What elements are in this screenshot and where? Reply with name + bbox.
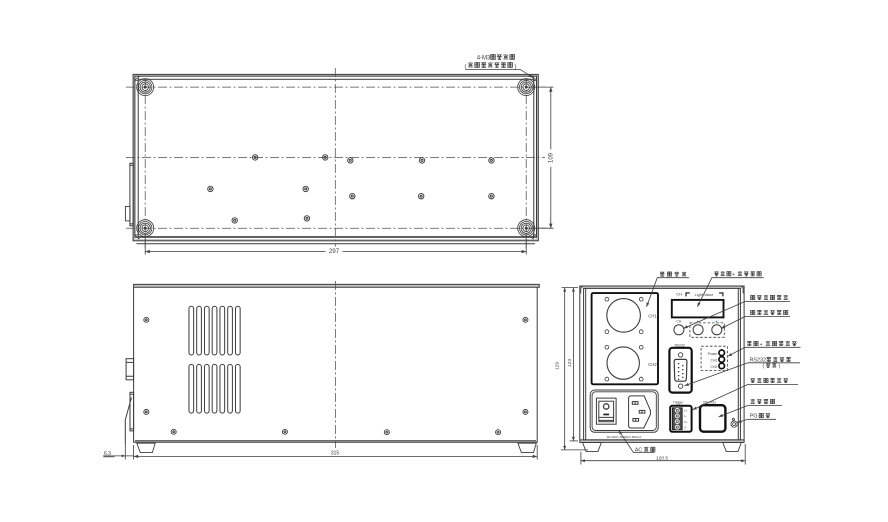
svg-text:123: 123 xyxy=(567,359,573,367)
svg-text:CH2: CH2 xyxy=(711,365,718,369)
svg-text:120.5: 120.5 xyxy=(656,456,668,462)
svg-text:Power: Power xyxy=(708,352,718,356)
svg-text:PG: PG xyxy=(750,414,758,420)
svg-text:4-M3: 4-M3 xyxy=(477,55,491,61)
svg-text:CH: CH xyxy=(676,292,682,297)
svg-text:CH: CH xyxy=(676,320,681,324)
svg-text:CH1: CH1 xyxy=(648,313,657,318)
svg-text:CH2: CH2 xyxy=(648,362,657,367)
svg-text:297: 297 xyxy=(329,248,340,255)
svg-text:109: 109 xyxy=(548,152,554,163)
svg-text:129: 129 xyxy=(555,362,561,370)
svg-text:315: 315 xyxy=(331,451,340,457)
svg-text:CH1: CH1 xyxy=(711,359,718,363)
svg-text:Trigger: Trigger xyxy=(673,400,684,404)
svg-text:2-: 2- xyxy=(684,426,687,430)
svg-text:1+: 1+ xyxy=(684,409,688,413)
svg-text:2+: 2+ xyxy=(684,420,688,424)
svg-text:1-: 1- xyxy=(684,414,687,418)
svg-text:6.3: 6.3 xyxy=(104,451,111,457)
